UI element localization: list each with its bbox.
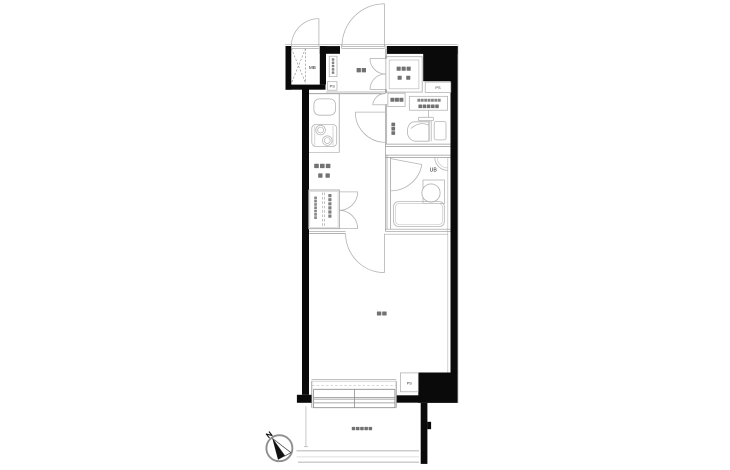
svg-text:PS: PS (330, 84, 336, 89)
svg-text:UB: UB (430, 168, 438, 174)
svg-text:PS: PS (435, 85, 441, 90)
svg-text:MB: MB (309, 65, 316, 70)
svg-text:PS: PS (407, 380, 413, 385)
